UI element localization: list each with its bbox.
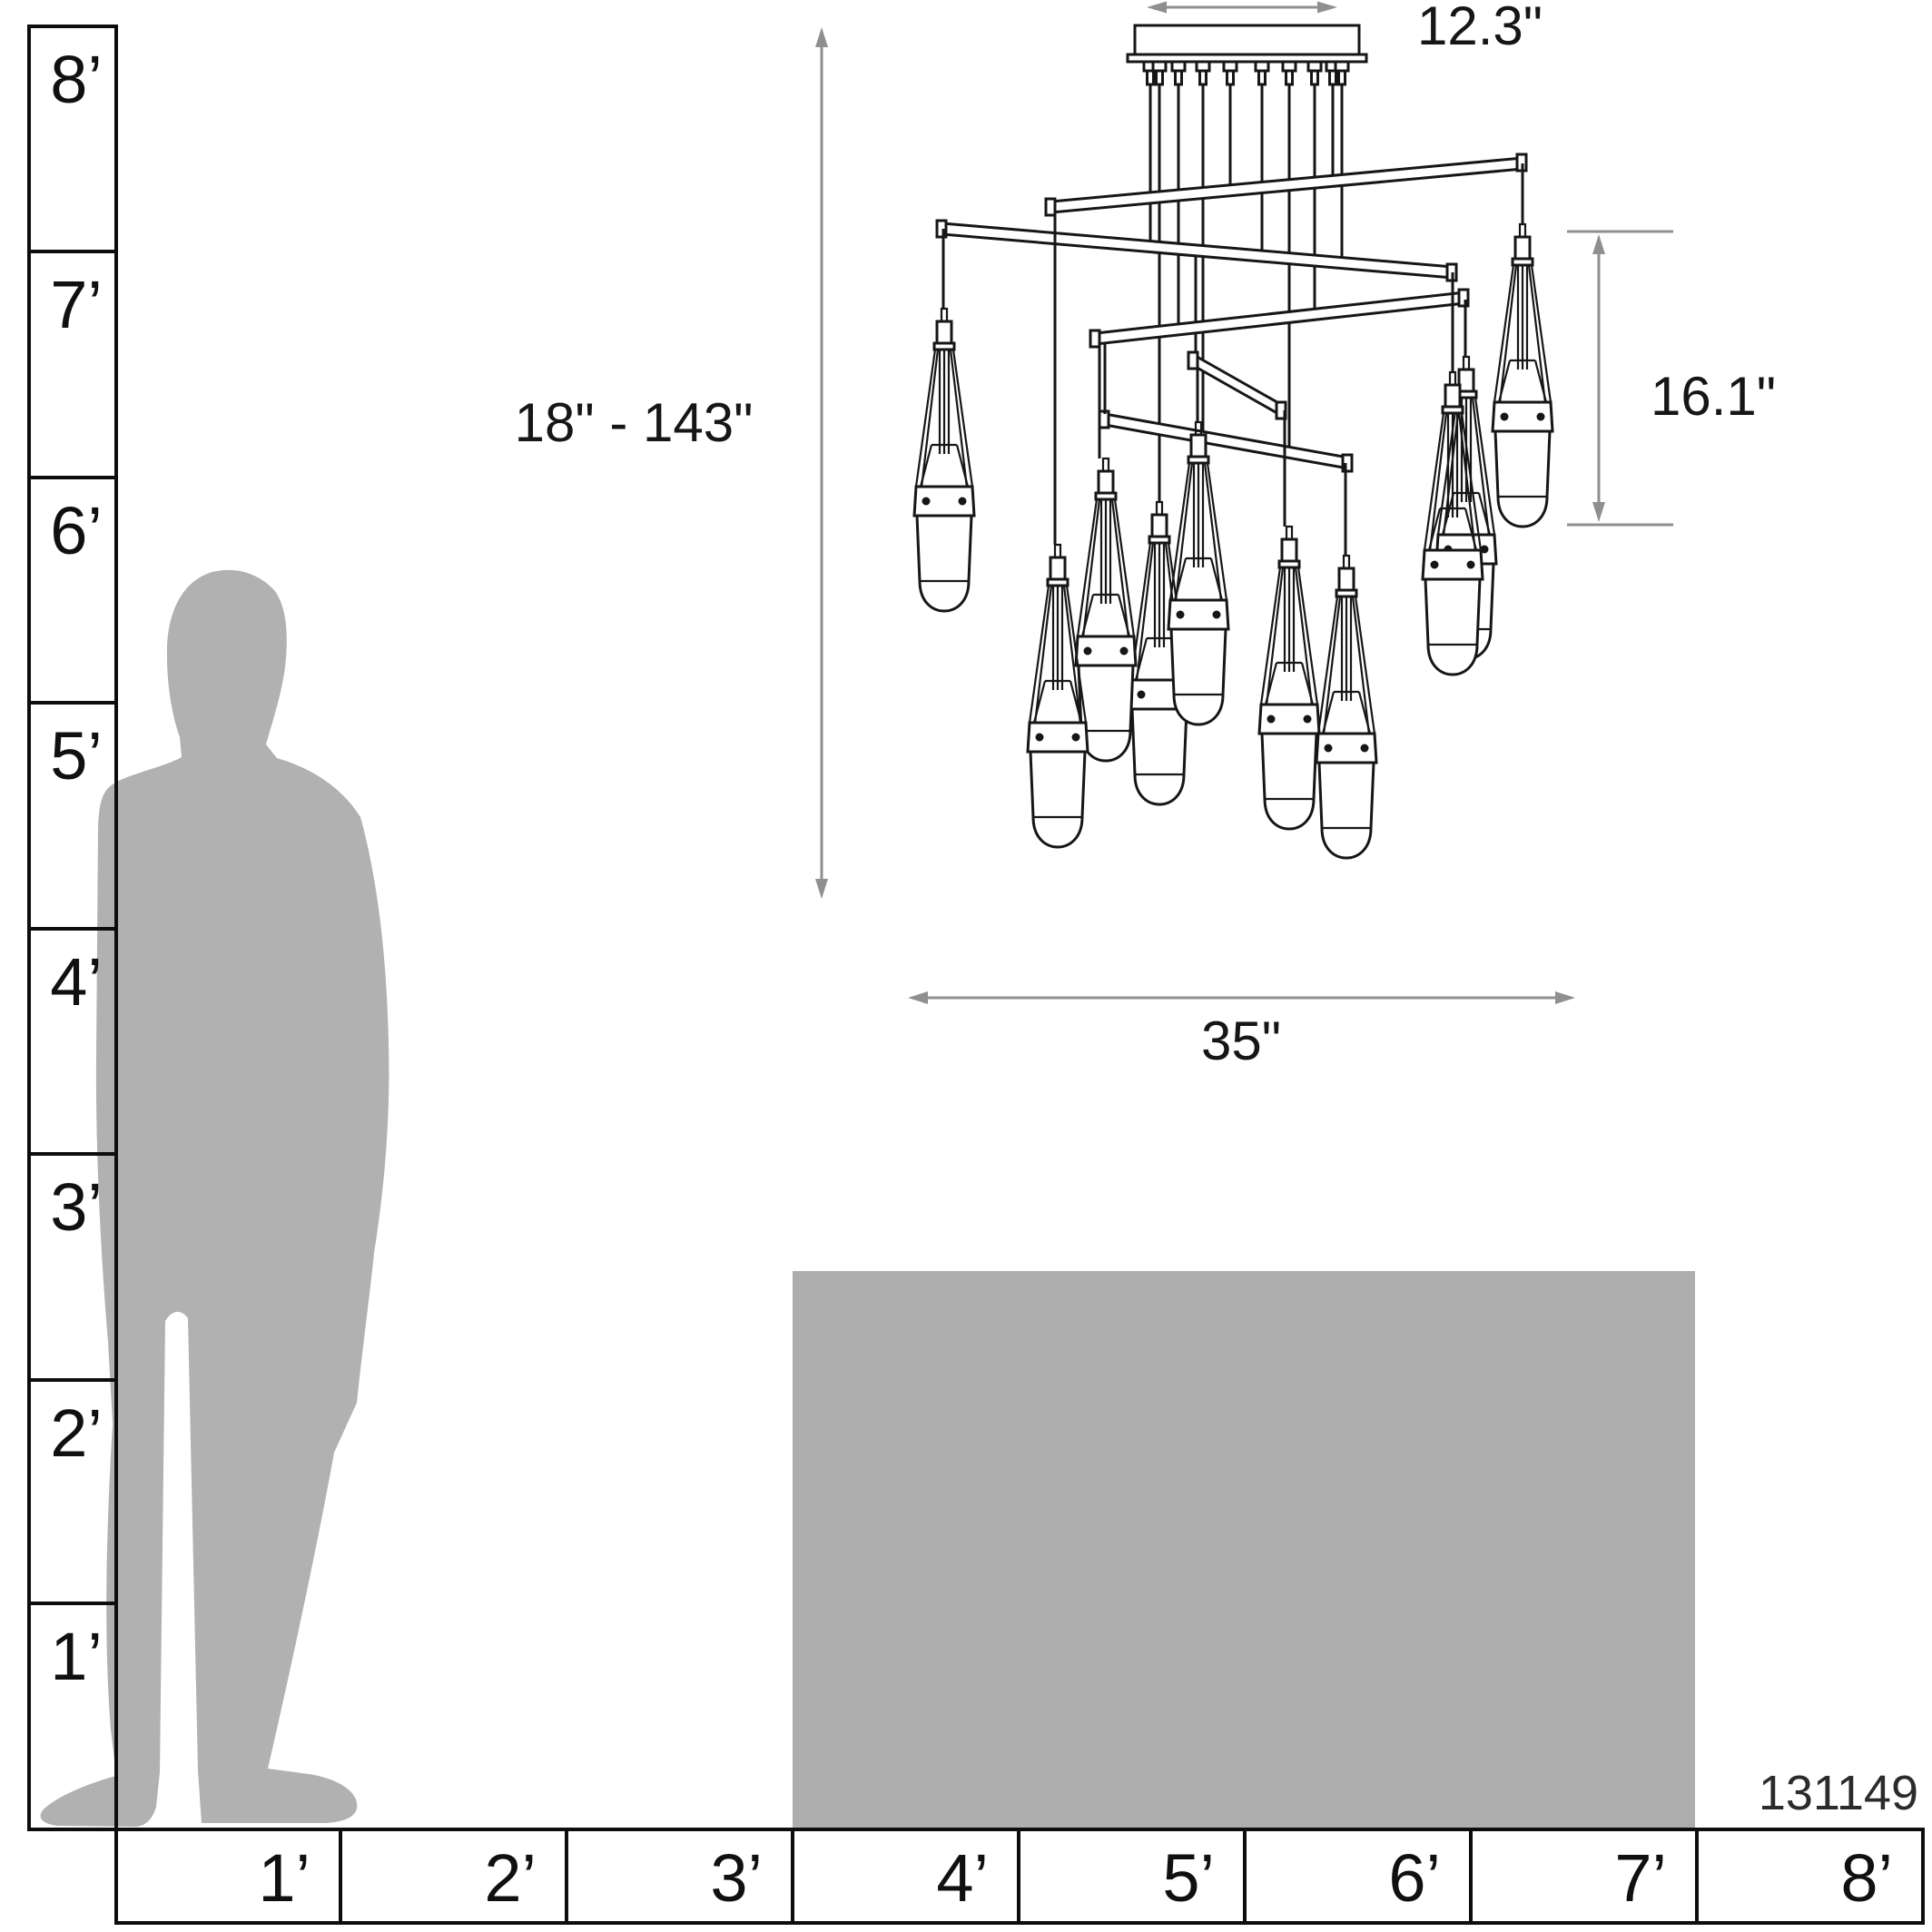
pendant-light [1316,556,1376,858]
horizontal-ruler-label: 3’ [710,1840,763,1916]
vertical-ruler-label: 8’ [50,42,103,117]
vertical-ruler-label: 4’ [50,944,103,1020]
dimension-height-range: 18" - 143" [515,27,828,899]
dimension-pendant-height: 16.1" [1567,232,1776,525]
horizontal-ruler-label: 6’ [1388,1840,1441,1916]
horizontal-ruler: 1’ 2’ 3’ 4’ 5’ 6’ 7’ 8’ [116,1829,1923,1923]
vertical-ruler-label: 2’ [50,1395,103,1471]
canopy-width-label: 12.3" [1417,0,1543,56]
pendant-light [914,309,974,611]
horizontal-ruler-label: 8’ [1840,1840,1893,1916]
horizontal-ruler-label: 1’ [258,1840,310,1916]
arrow-up-icon [1592,234,1605,254]
canopy [1128,25,1366,84]
fixture-width-label: 35" [1201,1010,1281,1071]
product-number: 131149 [1759,1766,1918,1820]
arrow-right-icon [1555,991,1575,1004]
dimension-diagram: 8’ 7’ 6’ 5’ 4’ 3’ 2’ 1’ 1’ 2’ 3’ 4’ 5’ 6… [0,0,1932,1932]
chandelier-drawing [914,25,1552,858]
arrow-left-icon [1147,2,1167,14]
suspension-bars [937,154,1526,471]
vertical-ruler-label: 3’ [50,1169,103,1245]
vertical-ruler-label: 5’ [50,718,103,793]
scale-diagram-page: 8’ 7’ 6’ 5’ 4’ 3’ 2’ 1’ 1’ 2’ 3’ 4’ 5’ 6… [0,0,1932,1932]
horizontal-ruler-label: 7’ [1614,1840,1667,1916]
canopy-stems [1144,62,1348,84]
pendant-light [1493,224,1552,527]
dimension-fixture-width: 35" [908,991,1575,1071]
pendant-light [1168,422,1228,724]
horizontal-ruler-label: 2’ [484,1840,537,1916]
vertical-ruler-label: 1’ [50,1619,103,1694]
pendant-light [1423,372,1483,675]
arrow-right-icon [1317,2,1337,14]
vertical-ruler-label: 7’ [50,267,103,342]
arrow-down-icon [1592,502,1605,522]
arrow-down-icon [815,879,828,899]
reference-box [793,1271,1695,1829]
pendant-light [1259,527,1319,829]
pendant-height-label: 16.1" [1651,366,1776,427]
arrow-left-icon [908,991,928,1004]
horizontal-ruler-label: 4’ [936,1840,989,1916]
arrow-up-icon [815,27,828,47]
vertical-ruler-label: 6’ [50,493,103,568]
horizontal-ruler-label: 5’ [1162,1840,1215,1916]
height-range-label: 18" - 143" [515,392,754,453]
